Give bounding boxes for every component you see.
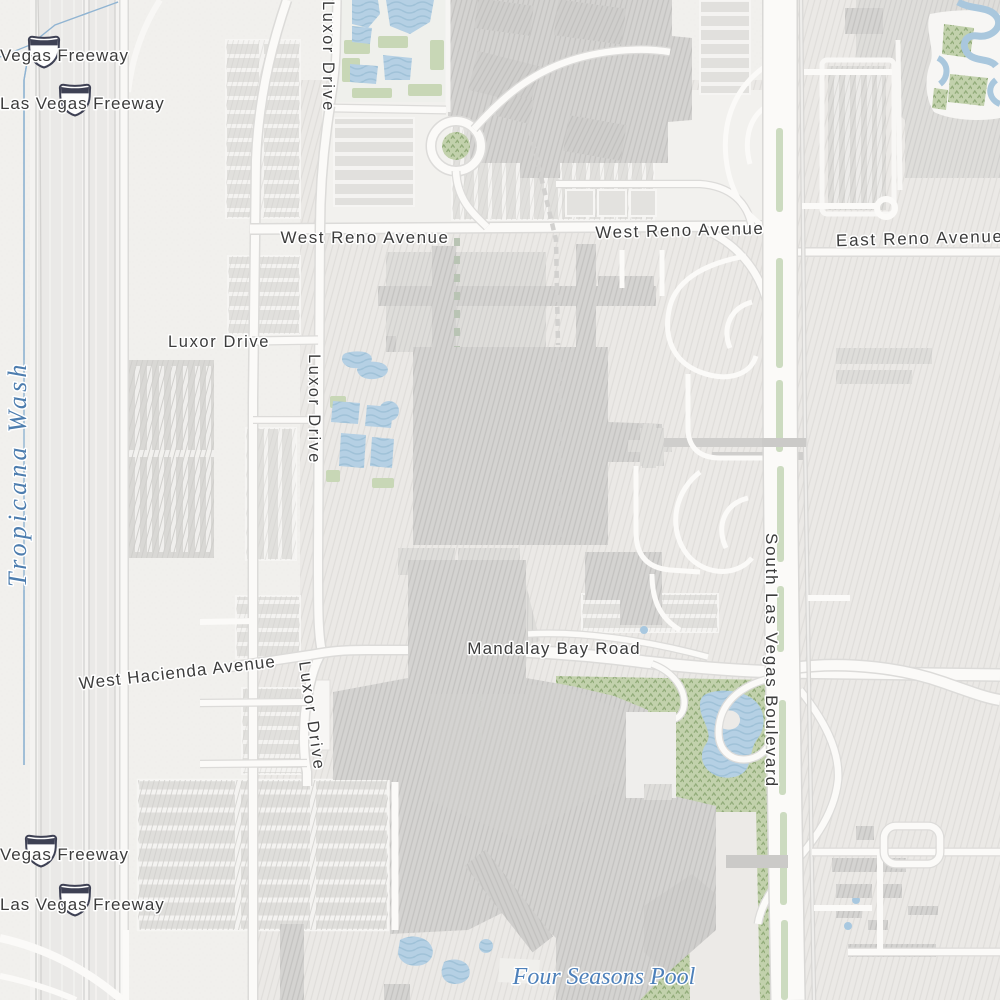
svg-text:Luxor Drive: Luxor Drive [305, 354, 323, 465]
svg-text:Mandalay Bay Road: Mandalay Bay Road [467, 639, 641, 658]
svg-text:Luxor Drive: Luxor Drive [168, 333, 270, 351]
svg-text:South Las Vegas Boulevard: South Las Vegas Boulevard [762, 533, 781, 788]
svg-text:Four Seasons Pool: Four Seasons Pool [512, 964, 696, 990]
svg-text:Tropicana Wash: Tropicana Wash [3, 360, 32, 587]
svg-text:West Reno Avenue: West Reno Avenue [281, 228, 450, 247]
svg-text:Vegas Freeway: Vegas Freeway [0, 845, 129, 864]
svg-text:Vegas Freeway: Vegas Freeway [0, 46, 129, 65]
svg-text:Luxor Drive: Luxor Drive [319, 1, 337, 113]
svg-text:Las Vegas Freeway: Las Vegas Freeway [0, 895, 165, 914]
svg-text:Las Vegas Freeway: Las Vegas Freeway [0, 94, 165, 113]
